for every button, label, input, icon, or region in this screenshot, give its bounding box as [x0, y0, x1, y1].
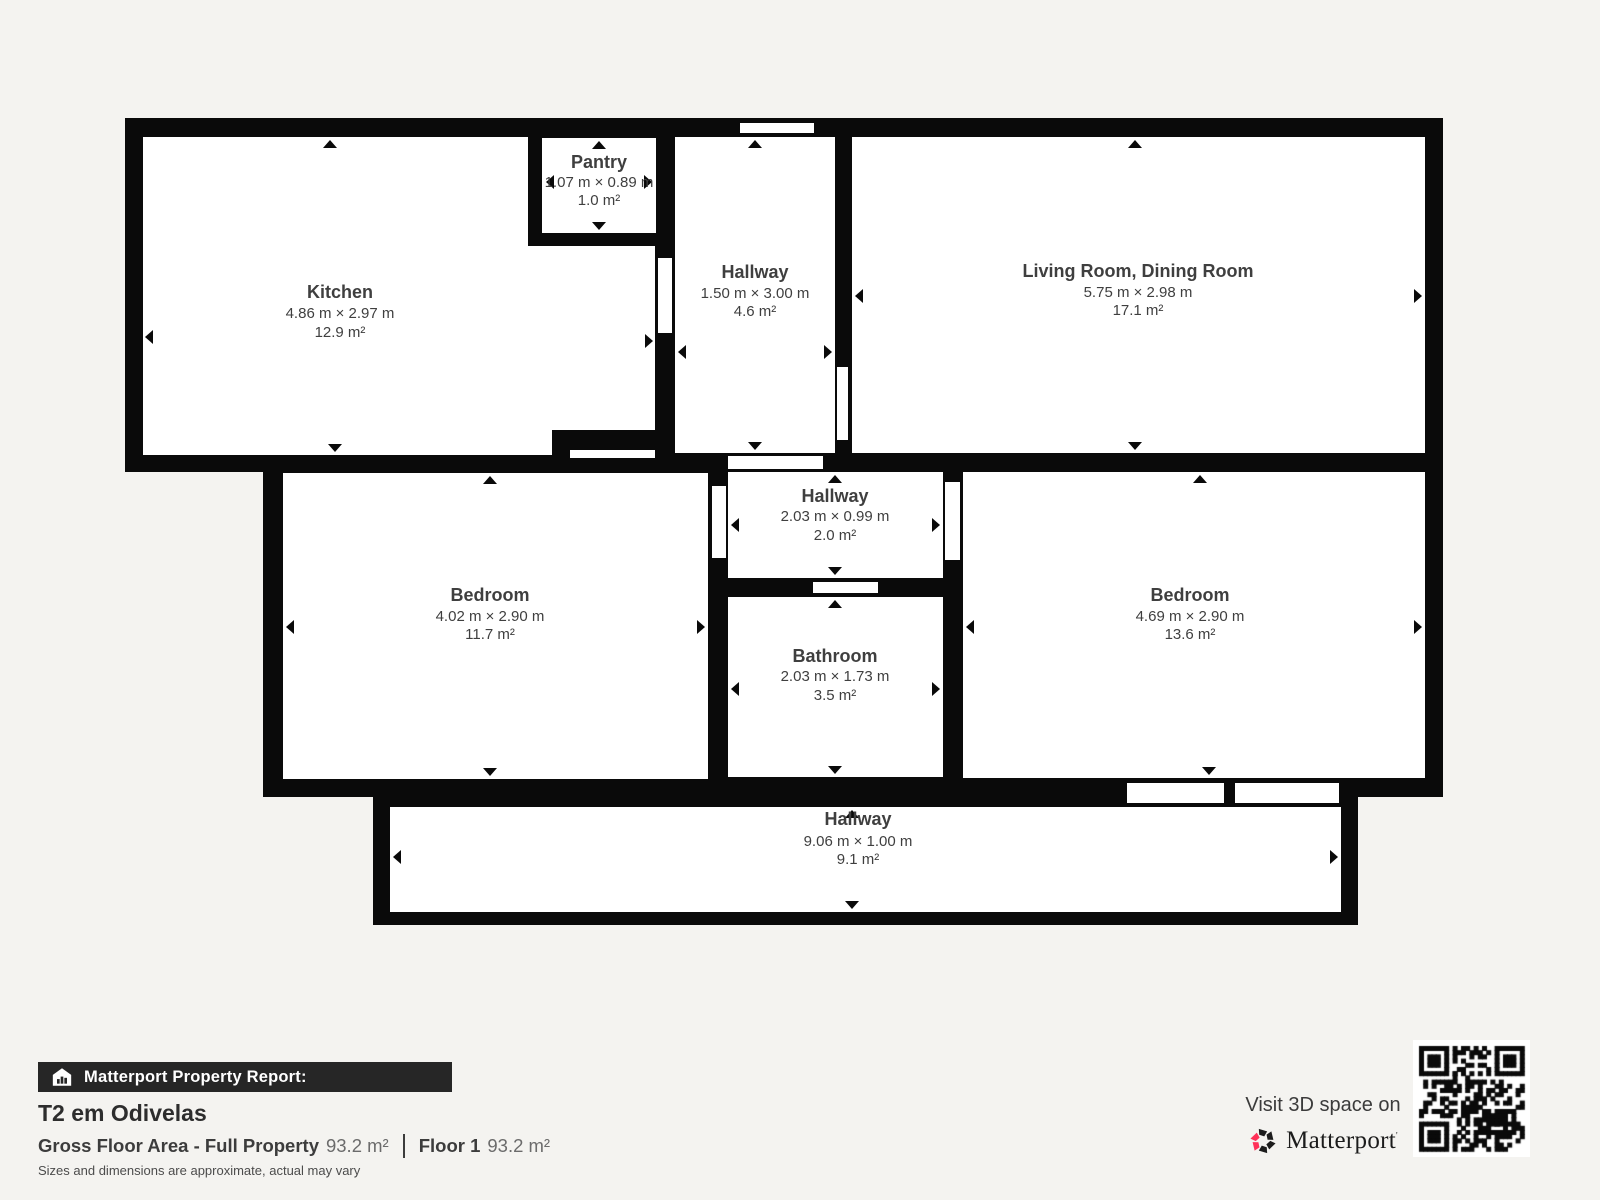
- matterport-brand-row: Matterport': [1243, 1126, 1403, 1156]
- room-area: 4.6 m²: [734, 303, 777, 320]
- qr-code: [1413, 1040, 1530, 1157]
- door-bedroom-hallway-bottom-2: [1235, 783, 1339, 803]
- property-report-page: Kitchen 4.86 m × 2.97 m 12.9 m² Pantry 1…: [0, 0, 1600, 1200]
- room-dims: 9.06 m × 1.00 m: [804, 833, 913, 850]
- door-hallway-living: [837, 367, 848, 440]
- room-bedroom-right-floor: [963, 472, 1425, 778]
- house-chart-icon: [52, 1067, 72, 1087]
- property-title: T2 em Odivelas: [38, 1100, 207, 1127]
- gross-floor-area-label: Gross Floor Area - Full Property: [38, 1135, 319, 1157]
- gross-floor-area-value: 93.2 m²: [326, 1135, 389, 1157]
- room-dims: 4.02 m × 2.90 m: [436, 608, 545, 625]
- floor-area-line: Gross Floor Area - Full Property 93.2 m²…: [38, 1134, 550, 1158]
- room-area: 11.7 m²: [465, 626, 515, 643]
- room-area: 13.6 m²: [1165, 626, 1216, 643]
- report-header-bar: Matterport Property Report:: [38, 1062, 452, 1092]
- disclaimer-text: Sizes and dimensions are approximate, ac…: [38, 1163, 360, 1178]
- room-area: 2.0 m²: [814, 527, 857, 544]
- door-hallway-bedroom-left: [712, 486, 726, 558]
- room-area: 17.1 m²: [1113, 302, 1164, 319]
- qr-code-canvas: [1413, 1040, 1530, 1157]
- door-hallway-bathroom: [813, 582, 878, 593]
- report-bar-label: Matterport Property Report:: [84, 1068, 307, 1087]
- room-dims: 5.75 m × 2.98 m: [1084, 284, 1193, 301]
- floor-value: 93.2 m²: [487, 1135, 550, 1157]
- room-dims: 1.50 m × 3.00 m: [701, 285, 810, 302]
- door-hallway-top-mid: [728, 456, 823, 469]
- room-name: Pantry: [571, 152, 627, 172]
- room-dims: 4.86 m × 2.97 m: [286, 305, 395, 322]
- door-entrance: [740, 123, 814, 133]
- room-name: Bathroom: [793, 646, 878, 666]
- floorplan: Kitchen 4.86 m × 2.97 m 12.9 m² Pantry 1…: [0, 0, 1600, 1200]
- room-area: 12.9 m²: [315, 324, 366, 341]
- visit-3d-text: Visit 3D space on: [1243, 1094, 1403, 1117]
- room-name: Hallway: [801, 486, 868, 506]
- visit-3d-promo: Visit 3D space on Matterport': [1243, 1094, 1403, 1156]
- door-kitchen-bedroom: [570, 450, 655, 458]
- room-dims: 2.03 m × 0.99 m: [781, 508, 890, 525]
- floor-label: Floor 1: [419, 1135, 481, 1157]
- door-kitchen-hallway: [658, 258, 672, 333]
- room-area: 1.0 m²: [578, 192, 621, 209]
- matterport-pinwheel-icon: [1248, 1126, 1278, 1156]
- door-bedroom-hallway-bottom-1: [1127, 783, 1224, 803]
- door-hallway-bedroom-right: [945, 482, 960, 560]
- room-area: 9.1 m²: [837, 851, 880, 868]
- divider: [403, 1134, 405, 1158]
- room-area: 3.5 m²: [814, 687, 857, 704]
- room-name: Bedroom: [1150, 585, 1229, 605]
- room-name: Hallway: [824, 809, 891, 829]
- room-dims: 1.07 m × 0.89 m: [545, 174, 654, 191]
- matterport-wordmark: Matterport': [1286, 1127, 1398, 1155]
- room-name: Bedroom: [450, 585, 529, 605]
- room-name: Living Room, Dining Room: [1023, 261, 1254, 281]
- room-dims: 4.69 m × 2.90 m: [1136, 608, 1245, 625]
- room-name: Hallway: [721, 262, 788, 282]
- room-dims: 2.03 m × 1.73 m: [781, 668, 890, 685]
- room-name: Kitchen: [307, 282, 373, 302]
